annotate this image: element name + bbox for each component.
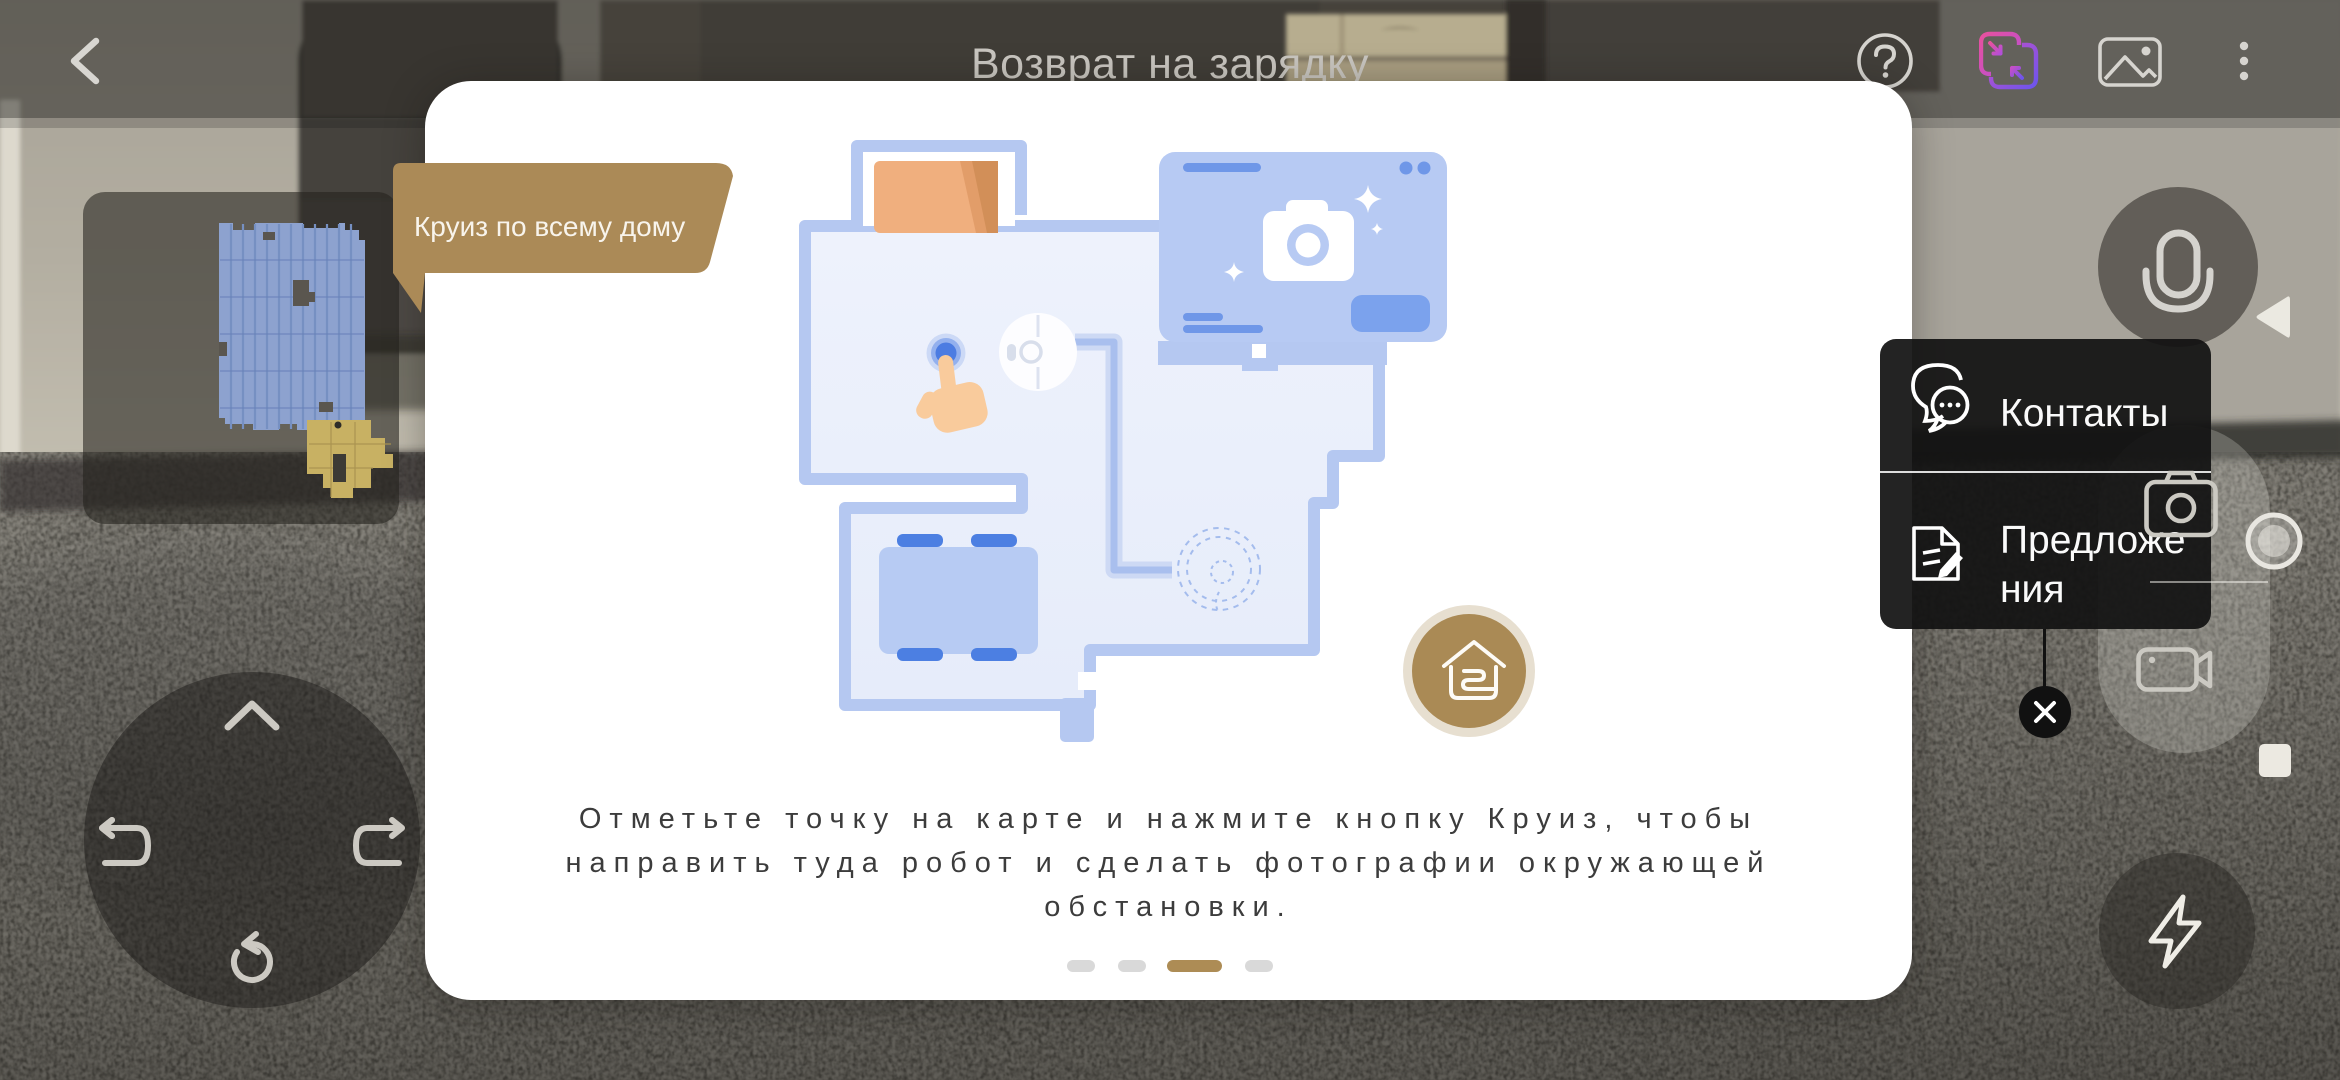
svg-text:Круиз по всему дому: Круиз по всему дому	[414, 211, 685, 242]
